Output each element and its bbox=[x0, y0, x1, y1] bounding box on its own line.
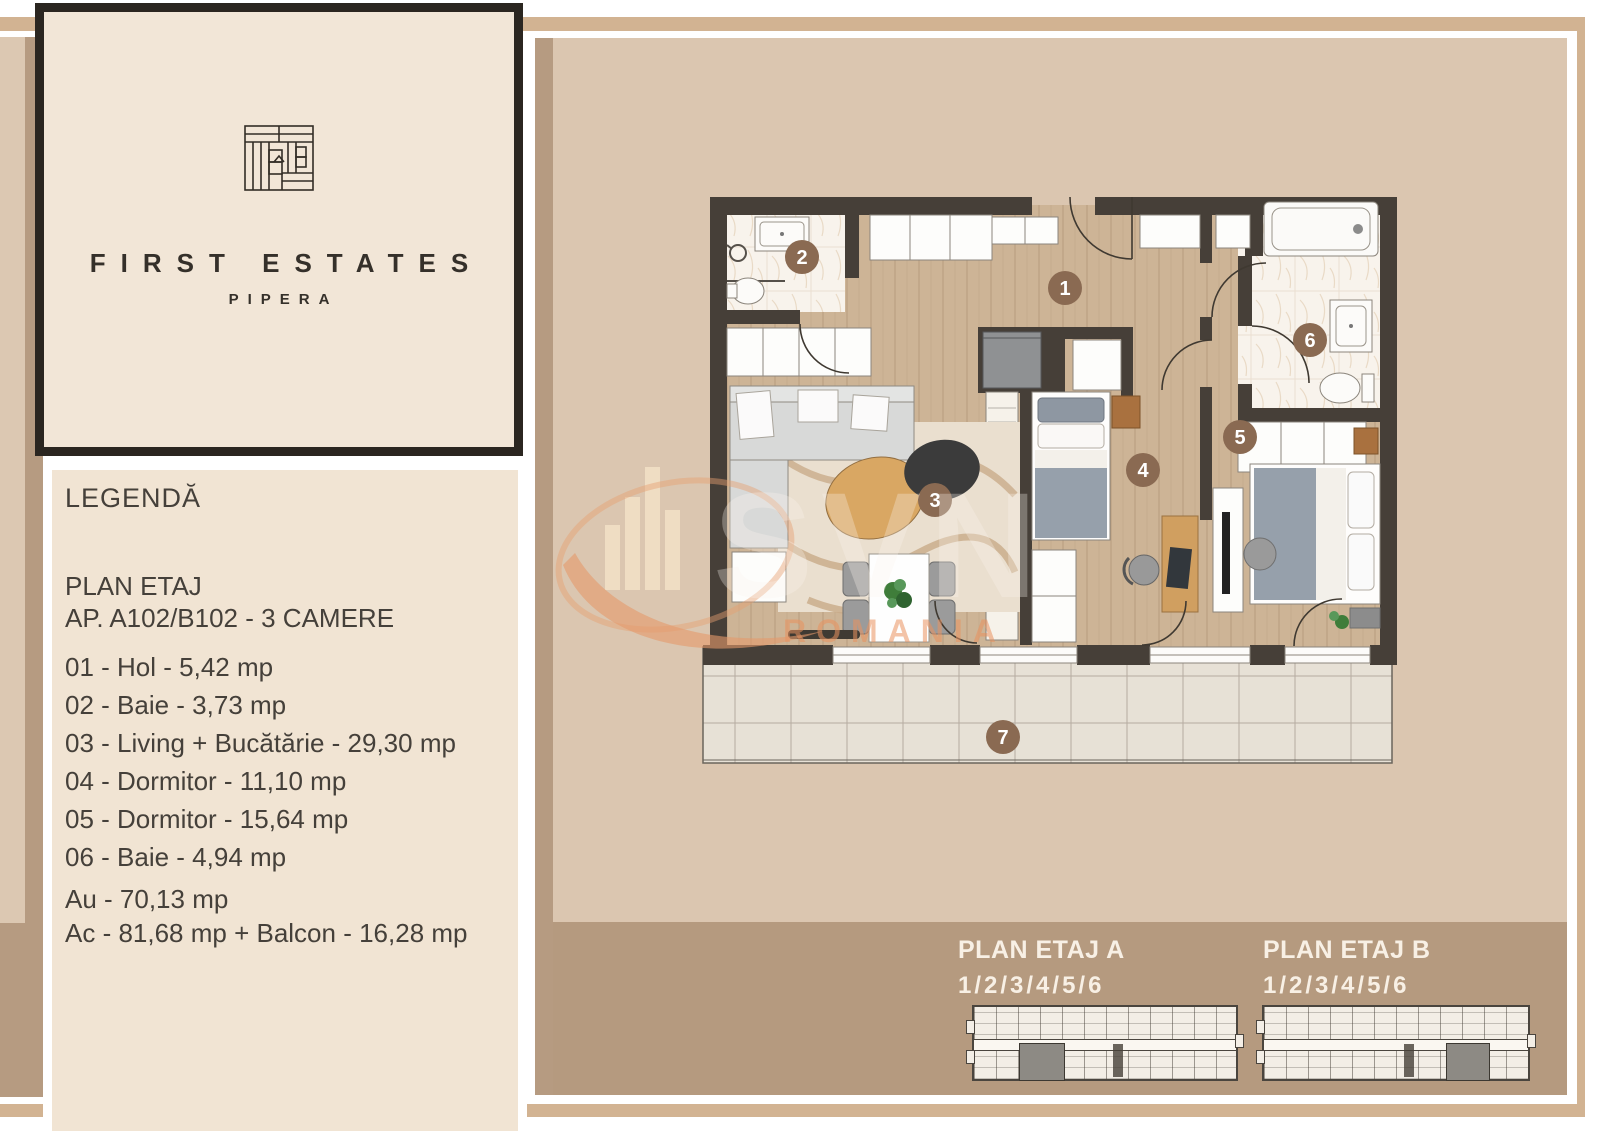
plan-etaj-a-levels: 1/2/3/4/5/6 bbox=[958, 972, 1125, 1000]
sofa-chaise bbox=[730, 460, 788, 548]
legend-room-item: 02 - Baie - 3,73 mp bbox=[65, 686, 456, 724]
page: { "logo": { "brand": "FIRST ESTATES", "l… bbox=[0, 0, 1600, 1131]
monitor bbox=[1222, 512, 1230, 594]
frame-right-strip bbox=[1577, 17, 1585, 1117]
plan-a-corridor bbox=[974, 1039, 1236, 1051]
plan-etaj-a-title: PLAN ETAJ A bbox=[958, 936, 1125, 965]
plan-a-tab bbox=[1235, 1034, 1244, 1048]
plan-a-tab bbox=[966, 1020, 975, 1034]
nightstand bbox=[1354, 428, 1378, 454]
side-table bbox=[732, 552, 786, 602]
legend-plan-heading: PLAN ETAJ AP. A102/B102 - 3 CAMERE bbox=[65, 570, 394, 634]
bench bbox=[1350, 608, 1380, 628]
legend-panel: LEGENDĂ PLAN ETAJ AP. A102/B102 - 3 CAME… bbox=[52, 470, 518, 1131]
frame-left-strip-light bbox=[0, 37, 25, 923]
nightstand bbox=[1112, 396, 1140, 428]
toilet bbox=[1320, 373, 1360, 403]
main-panel-left-strip bbox=[535, 38, 553, 1095]
desk-chair bbox=[1244, 538, 1276, 570]
legend-built-area: Ac - 81,68 mp + Balcon - 16,28 mp bbox=[65, 916, 468, 950]
plan-b-tab bbox=[1527, 1034, 1536, 1048]
legend-title: LEGENDĂ bbox=[65, 483, 201, 514]
legend-room-item: 01 - Hol - 5,42 mp bbox=[65, 648, 456, 686]
brand-location: PIPERA bbox=[44, 291, 514, 308]
legend-room-item: 05 - Dormitor - 15,64 mp bbox=[65, 800, 456, 838]
plan-a-tab bbox=[966, 1050, 975, 1064]
legend-room-item: 03 - Living + Bucătărie - 29,30 mp bbox=[65, 724, 456, 762]
plan-b-tab bbox=[1256, 1020, 1265, 1034]
legend-plan-line1: PLAN ETAJ bbox=[65, 570, 394, 602]
room-number-6: 6 bbox=[1304, 330, 1315, 352]
plan-etaj-b-levels: 1/2/3/4/5/6 bbox=[1263, 972, 1431, 1000]
plan-b-tab bbox=[1256, 1050, 1265, 1064]
parquet-logo-icon bbox=[44, 125, 514, 196]
frame-left-strip-dark-lower bbox=[0, 923, 25, 1097]
plan-a-core bbox=[1113, 1044, 1123, 1076]
plan-etaj-a-heading: PLAN ETAJ A 1/2/3/4/5/6 bbox=[958, 936, 1125, 1000]
plan-b-core bbox=[1404, 1044, 1415, 1076]
legend-useful-area: Au - 70,13 mp bbox=[65, 882, 468, 916]
room-number-7: 7 bbox=[997, 727, 1008, 749]
legend-room-item: 06 - Baie - 4,94 mp bbox=[65, 838, 456, 876]
desk-chair bbox=[1129, 555, 1159, 585]
room-number-4: 4 bbox=[1137, 460, 1149, 482]
room-number-5: 5 bbox=[1234, 427, 1245, 449]
building-plan-b-thumbnail bbox=[1262, 1005, 1530, 1081]
apartment-floor-plan: 1 2 3 4 5 6 7 bbox=[680, 160, 1420, 780]
plan-a-highlighted-unit bbox=[1019, 1043, 1066, 1081]
plan-etaj-b-title: PLAN ETAJ B bbox=[1263, 936, 1431, 965]
legend-apartment-line: AP. A102/B102 - 3 CAMERE bbox=[65, 602, 394, 634]
legend-room-list: 01 - Hol - 5,42 mp 02 - Baie - 3,73 mp 0… bbox=[65, 648, 456, 876]
fridge bbox=[983, 332, 1041, 388]
legend-room-item: 04 - Dormitor - 11,10 mp bbox=[65, 762, 456, 800]
legend-totals: Au - 70,13 mp Ac - 81,68 mp + Balcon - 1… bbox=[65, 882, 468, 950]
frame-bottom-band-left bbox=[0, 1104, 43, 1117]
frame-bottom-band-right bbox=[527, 1104, 1585, 1117]
console bbox=[788, 630, 860, 639]
room-number-3: 3 bbox=[929, 490, 940, 512]
plan-etaj-b-heading: PLAN ETAJ B 1/2/3/4/5/6 bbox=[1263, 936, 1431, 1000]
brand-logo-box: FIRST ESTATES PIPERA bbox=[35, 3, 523, 456]
room-number-2: 2 bbox=[796, 247, 807, 269]
plan-b-highlighted-unit bbox=[1446, 1043, 1490, 1081]
room-number-1: 1 bbox=[1059, 278, 1070, 300]
building-plan-a-thumbnail bbox=[972, 1005, 1238, 1081]
brand-name: FIRST ESTATES bbox=[44, 248, 514, 279]
